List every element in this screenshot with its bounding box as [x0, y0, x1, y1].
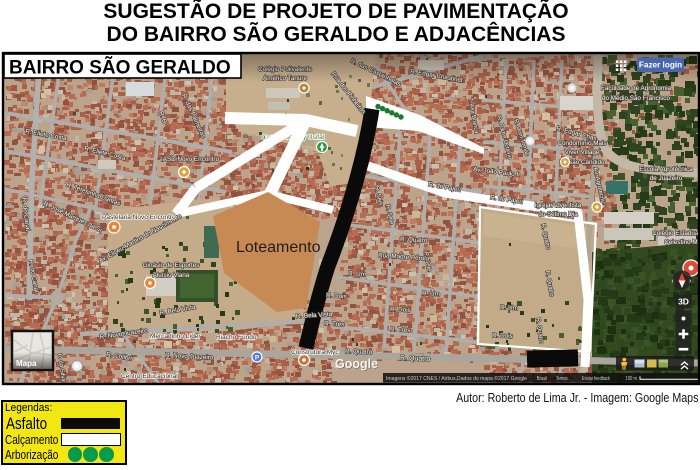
svg-text:Mercadinho Líder: Mercadinho Líder [150, 333, 201, 340]
svg-text:Faculdade de Agronomia: Faculdade de Agronomia [601, 85, 672, 92]
svg-text:BAIRRO SÃO GERALDO: BAIRRO SÃO GERALDO [9, 57, 231, 79]
svg-text:Mapa: Mapa [16, 359, 37, 368]
svg-text:Imagens ©2017 CNES / Airbus,Da: Imagens ©2017 CNES / Airbus,Dados do map… [386, 375, 527, 382]
svg-text:Igreja Adventista: Igreja Adventista [535, 202, 582, 209]
svg-text:3D: 3D [678, 297, 689, 307]
svg-text:R. Quatro: R. Quatro [400, 236, 428, 244]
svg-text:R. Um: R. Um [422, 290, 440, 298]
svg-text:Riacho Fundo: Riacho Fundo [216, 334, 257, 341]
svg-text:Loteamento: Loteamento [236, 239, 321, 256]
svg-text:Brasil: Brasil [537, 376, 548, 382]
svg-text:Escola Agrotécnica: Escola Agrotécnica [639, 166, 693, 173]
svg-text:Construtora Myc: Construtora Myc [291, 349, 339, 356]
svg-text:do Sétimo Dia: do Sétimo Dia [538, 211, 578, 218]
svg-text:R. Três: R. Três [390, 326, 411, 334]
svg-text:100 m: 100 m [625, 376, 637, 382]
svg-text:Aluísio Viana: Aluísio Viana [153, 272, 190, 279]
svg-text:Fazer login: Fazer login [639, 61, 682, 70]
svg-text:R. Dois: R. Dois [492, 332, 513, 340]
svg-text:Termos: Termos [556, 376, 568, 382]
svg-text:R. Um: R. Um [500, 304, 518, 312]
svg-text:R. Quatro: R. Quatro [345, 348, 373, 356]
svg-text:IASD Novo Encontro: IASD Novo Encontro [161, 156, 220, 163]
svg-text:Pastelaria Novo Encontro: Pastelaria Novo Encontro [102, 214, 176, 221]
svg-text:R. Dois: R. Dois [390, 306, 411, 314]
svg-text:Colégio Estadual: Colégio Estadual [652, 230, 700, 237]
svg-text:R. Quatro: R. Quatro [400, 355, 431, 363]
svg-text:Viver Village: Viver Village [565, 149, 600, 156]
svg-text:do Médio São Francisco: do Médio São Francisco [602, 95, 670, 102]
svg-text:Google: Google [335, 357, 378, 371]
svg-text:R. Dois: R. Dois [326, 292, 347, 300]
svg-text:de Juazeiro: de Juazeiro [650, 175, 683, 182]
svg-text:Ginásio de Esportes: Ginásio de Esportes [143, 262, 200, 269]
svg-text:Centro Educacional: Centro Educacional [121, 373, 178, 380]
svg-text:Condomínio Mais: Condomínio Mais [558, 140, 607, 147]
svg-text:Celestino M: Celestino M [664, 239, 697, 246]
svg-text:Enviar feedback: Enviar feedback [582, 376, 610, 382]
svg-text:R. Um: R. Um [348, 270, 366, 278]
svg-text:P: P [255, 355, 260, 362]
svg-text:R. Três: R. Três [324, 320, 345, 328]
